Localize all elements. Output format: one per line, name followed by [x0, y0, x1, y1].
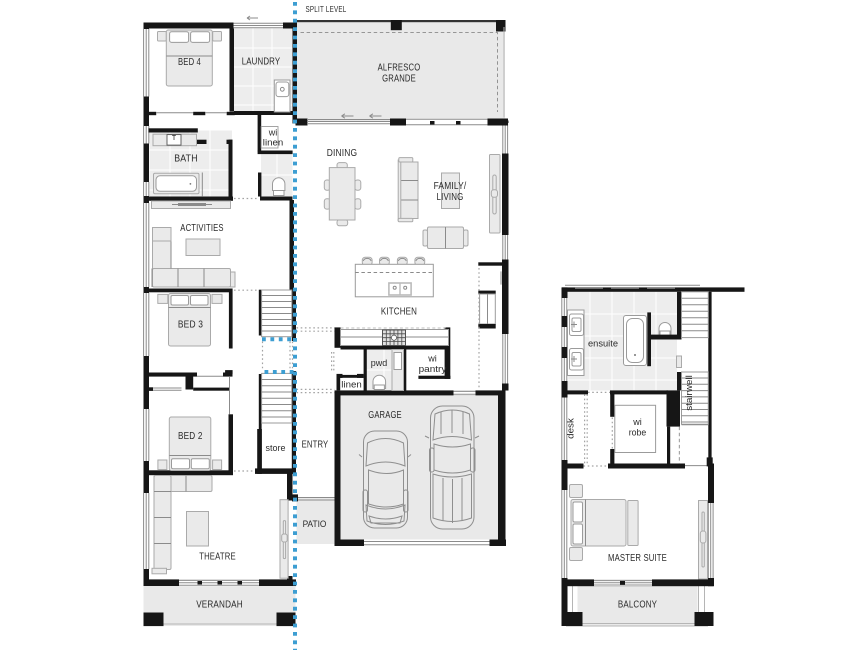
svg-text:MASTER SUITE: MASTER SUITE	[608, 553, 667, 564]
svg-text:linen: linen	[341, 380, 361, 390]
svg-text:SPLIT LEVEL: SPLIT LEVEL	[306, 4, 347, 14]
svg-text:pwd: pwd	[371, 358, 387, 368]
svg-text:pantry: pantry	[419, 364, 447, 374]
svg-text:ACTIVITIES: ACTIVITIES	[180, 223, 224, 234]
svg-text:linen: linen	[263, 138, 283, 148]
svg-text:robe: robe	[629, 428, 647, 438]
svg-text:THEATRE: THEATRE	[199, 552, 236, 563]
svg-text:GRANDE: GRANDE	[382, 74, 416, 85]
svg-text:BALCONY: BALCONY	[618, 600, 658, 611]
svg-text:ENTRY: ENTRY	[302, 440, 329, 451]
svg-text:BED 3: BED 3	[178, 320, 203, 331]
svg-text:wi: wi	[632, 417, 641, 427]
svg-text:BATH: BATH	[174, 154, 198, 165]
svg-text:desk: desk	[566, 418, 576, 439]
svg-text:wi: wi	[268, 128, 277, 138]
svg-text:store: store	[266, 443, 286, 453]
svg-text:DINING: DINING	[327, 148, 358, 159]
svg-text:LAUNDRY: LAUNDRY	[242, 57, 281, 68]
svg-text:wi: wi	[427, 354, 436, 364]
svg-text:BED 2: BED 2	[178, 431, 203, 442]
svg-text:stairwell: stairwell	[684, 375, 694, 411]
svg-text:BED 4: BED 4	[178, 57, 201, 68]
svg-text:FAMILY/: FAMILY/	[434, 181, 467, 192]
svg-text:KITCHEN: KITCHEN	[381, 306, 417, 317]
svg-text:GARAGE: GARAGE	[368, 410, 402, 421]
svg-text:LIVING: LIVING	[437, 192, 464, 203]
svg-text:PATIO: PATIO	[303, 519, 327, 529]
svg-text:ensuite: ensuite	[588, 339, 618, 349]
svg-text:ALFRESCO: ALFRESCO	[378, 63, 421, 74]
svg-text:VERANDAH: VERANDAH	[196, 600, 243, 611]
